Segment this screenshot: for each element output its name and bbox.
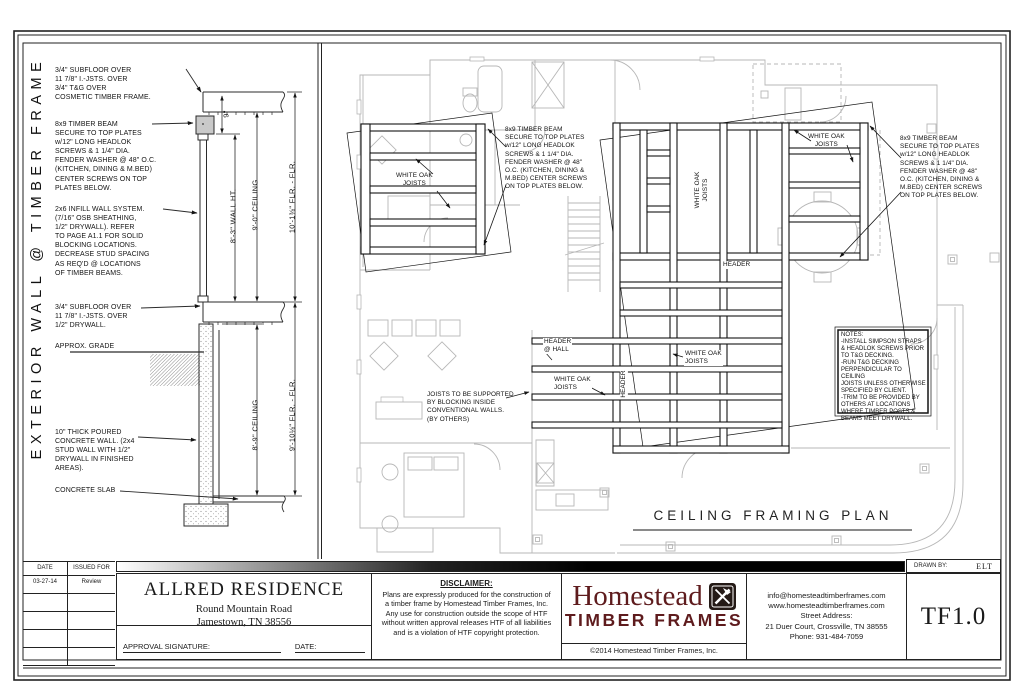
note-infill-wall: 2x6 INFILL WALL SYSTEM. (7/16" OSB SHEAT… — [55, 205, 150, 278]
rev-issued-value: Review — [68, 576, 115, 593]
copyright-line: ©2014 Homestead Timber Frames, Inc. — [562, 643, 746, 659]
note-subfloor-lower: 3/4" SUBFLOOR OVER 11 7/8" I.-JSTS. OVER… — [55, 303, 131, 330]
logo-wordmark: Homestead — [572, 582, 702, 611]
approval-date-line: DATE: — [295, 642, 365, 653]
sheet-number-cell: TF1.0 — [906, 573, 1001, 660]
disclaimer-title: DISCLAIMER: — [380, 579, 553, 588]
contact-cell: info@homesteadtimberframes.com www.homes… — [746, 573, 906, 660]
dim-9in: 9" — [222, 110, 231, 117]
project-cell: ALLRED RESIDENCE Round Mountain Road Jam… — [116, 573, 371, 660]
rev-issued-header: ISSUED FOR — [68, 562, 115, 575]
beam-note-center: 8x9 TIMBER BEAM SECURE TO TOP PLATES w/1… — [505, 126, 589, 192]
contact-info: info@homesteadtimberframes.com www.homes… — [765, 591, 887, 642]
disclaimer-cell: DISCLAIMER: Plans are expressly produced… — [371, 573, 561, 660]
sheet-number: TF1.0 — [921, 603, 986, 631]
label-header-vertical: HEADER — [620, 369, 628, 398]
label-white-oak-mid: WHITE OAK JOISTS — [684, 350, 723, 366]
note-concrete-wall: 10" THICK POURED CONCRETE WALL. (2x4 STU… — [55, 428, 134, 473]
side-label-exterior-wall: EXTERIOR WALL @ TIMBER FRAME — [29, 57, 45, 460]
beam-note-right: 8x9 TIMBER BEAM SECURE TO TOP PLATES w/1… — [900, 135, 994, 201]
approval-row: APPROVAL SIGNATURE: DATE: — [117, 625, 371, 659]
note-joist-support: JOISTS TO BE SUPPORTED BY BLOCKING INSID… — [427, 391, 514, 424]
note-concrete-slab: CONCRETE SLAB — [55, 486, 115, 495]
label-white-oak-vertical: WHITE OAK JOISTS — [694, 172, 710, 209]
drawn-by-box: DRAWN BY: ELT — [906, 559, 1001, 573]
rev-date-value: 03-27-14 — [23, 576, 68, 593]
note-subfloor-upper: 3/4" SUBFLOOR OVER 11 7/8" I.-JSTS. OVER… — [55, 66, 151, 102]
label-white-oak-topright: WHITE OAK JOISTS — [808, 133, 845, 149]
label-white-oak-left: WHITE OAK JOISTS — [396, 172, 433, 188]
dim-ceiling-lower: 8'-9" CEILING — [251, 400, 260, 451]
notes-box: NOTES: -INSTALL SIMPSON STRAPS & HEADLOK… — [841, 332, 927, 423]
dim-wall-height: 8'-3" WALL HT. — [229, 189, 238, 243]
project-address-1: Round Mountain Road — [117, 603, 371, 616]
logo-subtitle: TIMBER FRAMES — [562, 612, 746, 630]
drawing-sheet: EXTERIOR WALL @ TIMBER FRAME 3/4" SUBFLO… — [0, 0, 1024, 696]
label-header-hall: HEADER @ HALL — [543, 338, 572, 354]
dim-ceiling-upper: 9'-0" CEILING — [251, 180, 260, 231]
revision-table: DATE ISSUED FOR 03-27-14 Review — [23, 561, 115, 660]
drawn-by-label: DRAWN BY: — [914, 563, 947, 569]
framing-overlay — [347, 102, 931, 530]
note-approx-grade: APPROX. GRADE — [55, 342, 114, 351]
drawn-by-value: ELT — [976, 562, 993, 571]
note-timber-beam: 8x9 TIMBER BEAM SECURE TO TOP PLATES w/1… — [55, 120, 156, 193]
approval-signature-line: APPROVAL SIGNATURE: — [123, 642, 281, 653]
dim-flr-flr-upper: 10'-1⅜" FLR. - FLR. — [288, 161, 297, 233]
disclaimer-body: Plans are expressly produced for the con… — [380, 590, 553, 637]
plan-title: CEILING FRAMING PLAN — [633, 508, 913, 523]
title-block: DATE ISSUED FOR 03-27-14 Review DRAWN BY… — [23, 559, 1001, 660]
logo-cell: Homestead TIMBER FRAMES ©2014 Homestead … — [561, 573, 746, 660]
gradient-bar — [116, 561, 905, 572]
crossed-tools-icon — [709, 583, 736, 610]
project-name: ALLRED RESIDENCE — [117, 579, 371, 601]
dim-flr-flr-lower: 9'-10⅛" FLR. - FLR. — [288, 379, 297, 451]
rev-date-header: DATE — [23, 562, 68, 575]
label-header: HEADER — [722, 261, 751, 269]
label-white-oak-hall: WHITE OAK JOISTS — [553, 376, 592, 392]
